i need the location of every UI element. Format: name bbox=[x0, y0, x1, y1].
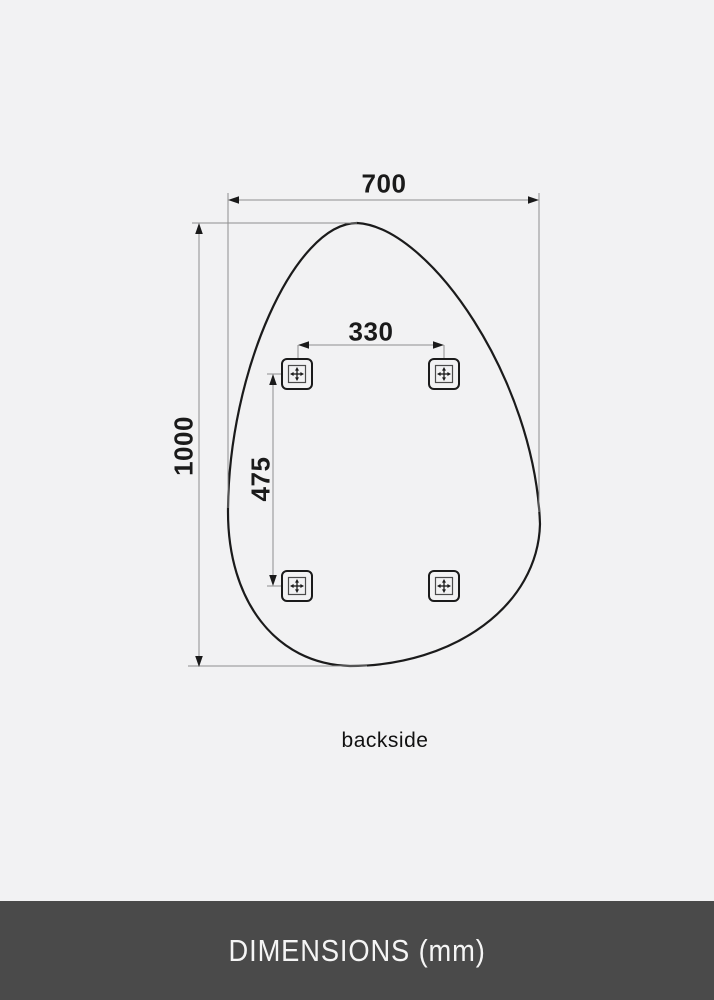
mount-bracket-top-right bbox=[429, 359, 459, 389]
mount-bracket-bottom-right bbox=[429, 571, 459, 601]
mirror-outline bbox=[228, 223, 540, 666]
footer-bar: DIMENSIONS (mm) bbox=[0, 901, 714, 1000]
mirror-dimension-diagram bbox=[0, 0, 714, 901]
mount-bracket-bottom-left bbox=[282, 571, 312, 601]
backside-caption: backside bbox=[342, 729, 429, 753]
bracket-spacing-horizontal-label: 330 bbox=[349, 317, 394, 348]
bracket-spacing-vertical-label: 475 bbox=[246, 457, 277, 502]
dimension-drawing-page: 700 1000 330 475 backside DIMENSIONS (mm… bbox=[0, 0, 714, 1000]
width-dimension-label: 700 bbox=[362, 169, 407, 200]
footer-title: DIMENSIONS (mm) bbox=[228, 933, 485, 969]
dimension-height bbox=[188, 223, 367, 667]
mount-bracket-top-left bbox=[282, 359, 312, 389]
height-dimension-label: 1000 bbox=[169, 416, 200, 476]
